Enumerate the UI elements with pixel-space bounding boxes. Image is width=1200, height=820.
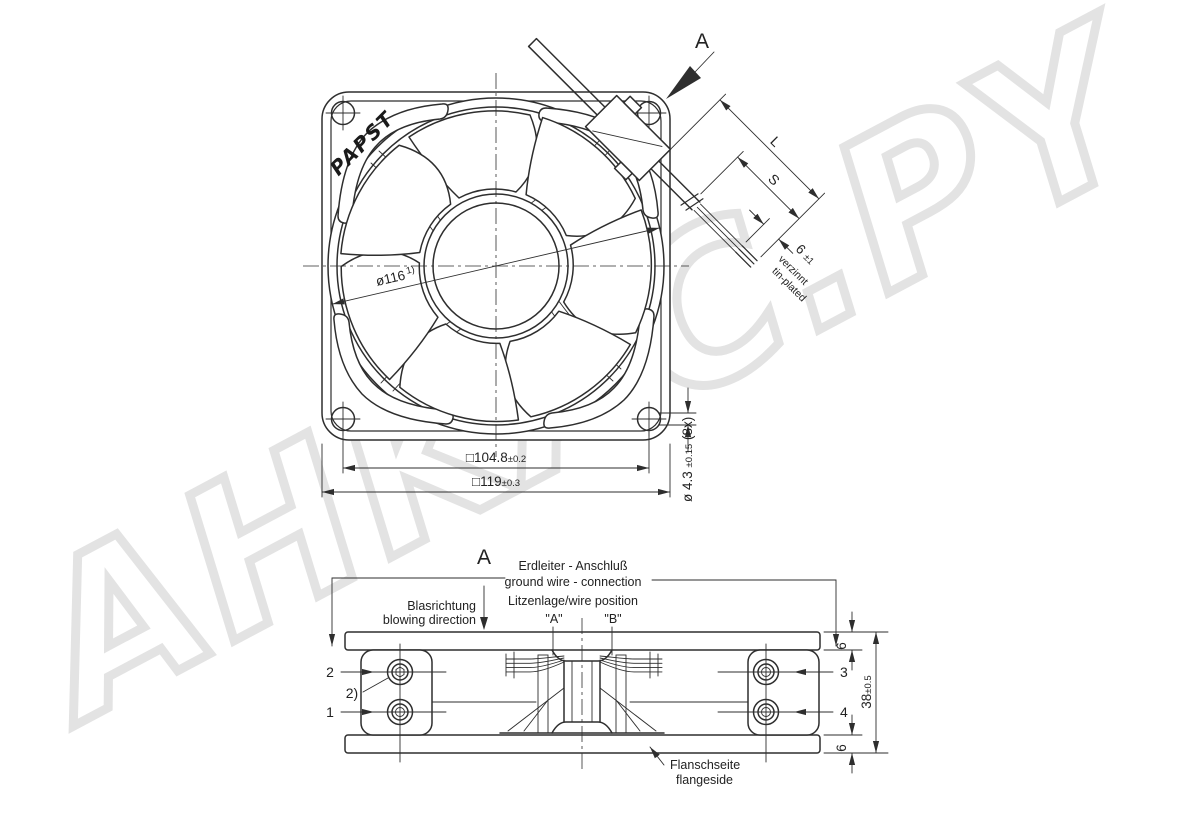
flange-side-de: Flanschseite	[670, 758, 740, 772]
wire-position-a: "A"	[545, 612, 562, 626]
dim-mounting-hole-text: ø 4.3 ±0.15 (8x)	[680, 417, 695, 502]
flange-side-en: flangeside	[676, 773, 733, 787]
dim-flange-top-text: 6	[834, 642, 849, 650]
callout-4: 4	[840, 704, 848, 720]
dim-depth-group: 6 6 38±0.5	[824, 612, 888, 773]
top-flange	[345, 632, 820, 650]
callout-1: 1	[326, 704, 334, 720]
ground-label-en: ground wire - connection	[505, 575, 642, 589]
blowing-arrowhead	[480, 617, 488, 630]
callout-3: 3	[840, 664, 848, 680]
view-a-label: A	[695, 30, 709, 53]
blowing-label-de: Blasrichtung	[407, 599, 476, 613]
wire-position-b: "B"	[604, 612, 621, 626]
wire-position-label: Litzenlage/wire position	[508, 594, 638, 608]
bottom-flange	[345, 735, 820, 753]
view-direction-a: A	[666, 30, 714, 99]
dim-depth-text: 38±0.5	[859, 675, 874, 708]
callout-2-note: 2)	[346, 685, 358, 701]
ground-label-de: Erdleiter - Anschluß	[518, 559, 627, 573]
section-a-label: A	[477, 546, 491, 569]
dim-flange-bottom-text: 6	[834, 744, 849, 752]
callout-2: 2	[326, 664, 334, 680]
fan-drawing-svg: AHKAC.PY	[0, 0, 1200, 820]
technical-drawing-canvas: AHKAC.PY	[0, 0, 1200, 820]
blowing-label-en: blowing direction	[383, 613, 476, 627]
